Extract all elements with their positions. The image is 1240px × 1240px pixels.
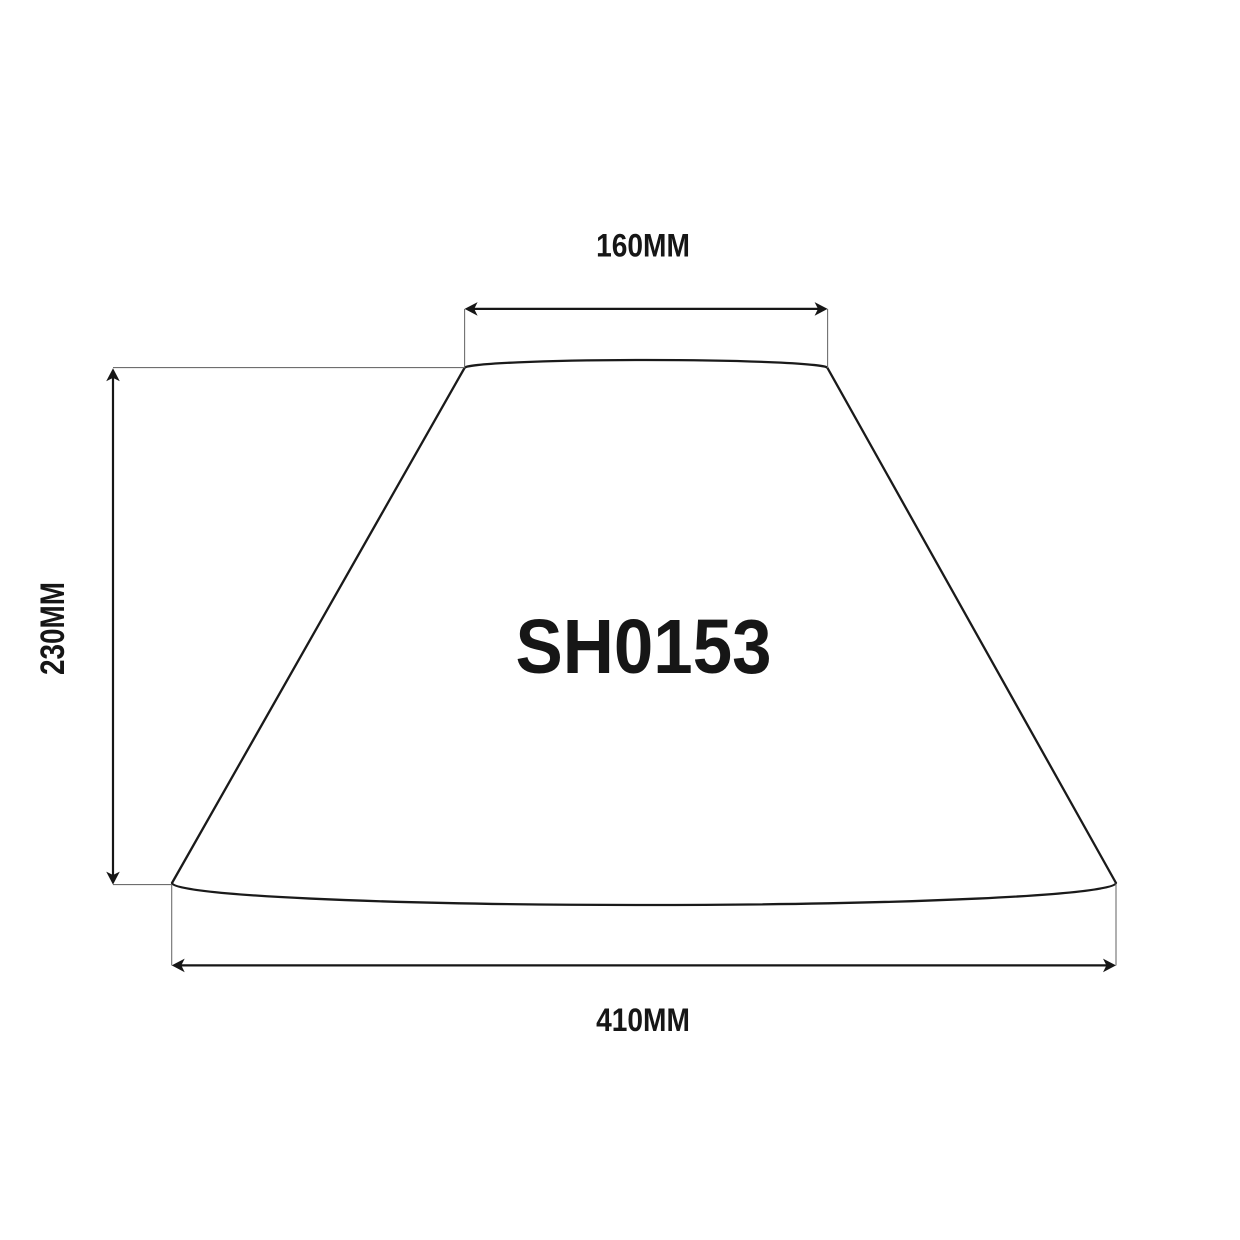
svg-text:410MM: 410MM <box>596 1002 690 1038</box>
svg-text:230MM: 230MM <box>33 582 71 675</box>
svg-text:160MM: 160MM <box>596 228 690 264</box>
svg-text:SH0153: SH0153 <box>516 603 772 689</box>
